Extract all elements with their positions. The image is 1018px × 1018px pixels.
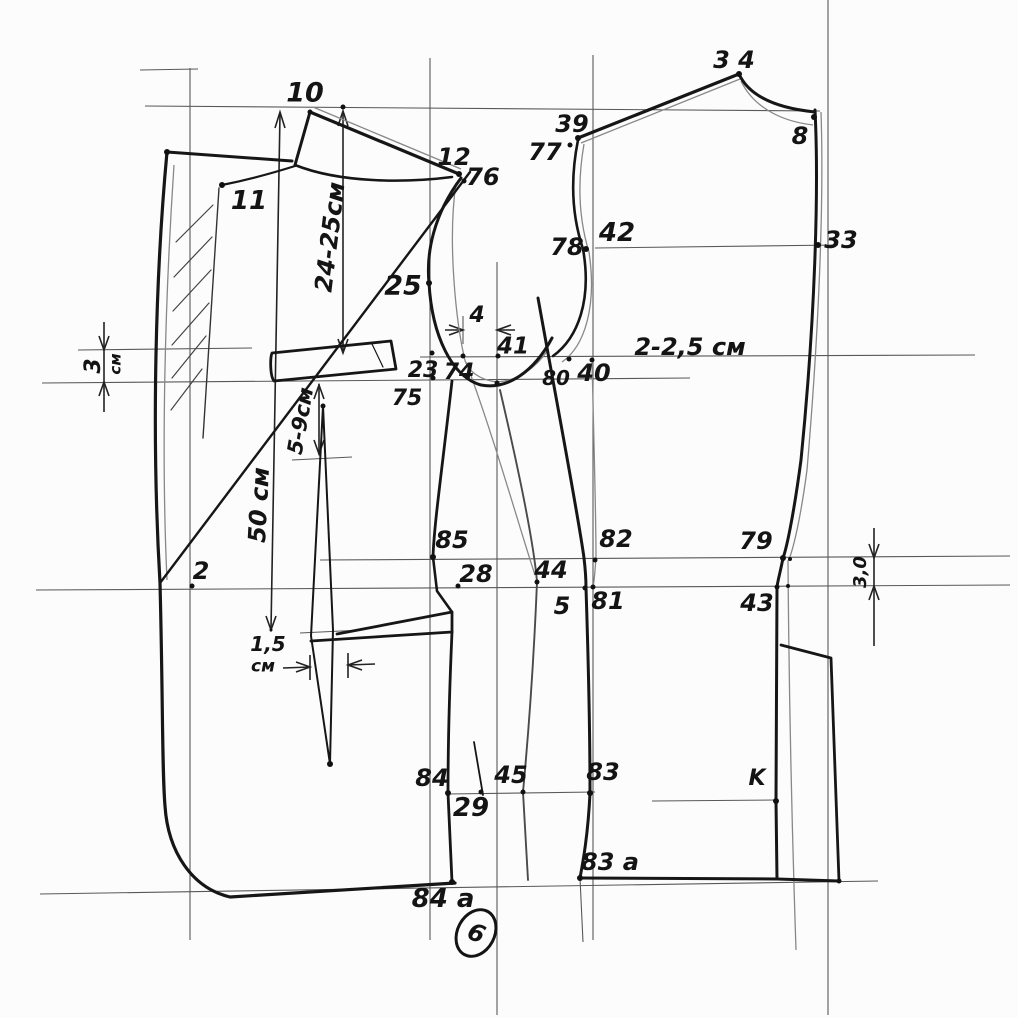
- pattern-point-dot: [321, 404, 326, 409]
- point-label-K: K: [748, 768, 765, 790]
- point-label-33: 33: [824, 228, 857, 252]
- front-waist-dart: [311, 406, 333, 764]
- lapel-notch-line: [295, 112, 310, 165]
- point-label-74: 74: [444, 362, 475, 384]
- back-center-edge: [776, 110, 816, 879]
- point-label-84a: 84 a: [412, 886, 475, 912]
- below-hem-tick: [580, 878, 583, 942]
- pattern-draft-sheet: 101112762523757441480402-2,5 см39773 484…: [0, 0, 1018, 1018]
- sheet-number: 6: [463, 917, 489, 949]
- pattern-point-dot: [327, 761, 333, 767]
- point-label-4: 4: [469, 305, 484, 327]
- dart-width-measure-line: [283, 653, 375, 680]
- front-armhole-curve: [428, 178, 552, 386]
- point-label-11: 11: [231, 188, 267, 214]
- point-label-44: 44: [534, 558, 567, 582]
- point-label-8: 8: [792, 124, 809, 148]
- pattern-point-dot: [430, 351, 435, 356]
- point-label-2: 2: [193, 559, 210, 583]
- side-piece-front-edge-lower: [448, 632, 452, 882]
- pattern-point-dot: [341, 105, 346, 110]
- back-shoulder-echo: [581, 79, 740, 143]
- point-label-10: 10: [286, 80, 324, 107]
- point-label-43: 43: [740, 591, 773, 615]
- side-piece-back-edge: [500, 390, 537, 880]
- point-label-79: 79: [739, 529, 772, 553]
- collar-point-curve: [222, 166, 295, 185]
- side-piece-step: [433, 557, 452, 612]
- pattern-point-dot: [788, 557, 792, 561]
- point-label-25: 25: [384, 273, 422, 300]
- chest-pocket-flap: [271, 341, 396, 381]
- pattern-point-dot: [815, 242, 821, 248]
- pattern-point-dot: [308, 110, 313, 115]
- measurement-right-gap: 3,0: [852, 556, 870, 588]
- point-label-dart-width-val: 1,5: [250, 634, 285, 654]
- pattern-point-dot: [521, 790, 526, 795]
- measurement-left-gap-unit: см: [109, 353, 124, 374]
- point-label-28: 28: [459, 562, 492, 586]
- flap-drop-tick: [292, 457, 352, 460]
- back-neck-curve: [739, 74, 815, 112]
- point-label-29: 29: [453, 795, 489, 821]
- point-label-83a: 83 a: [581, 850, 639, 874]
- point-label-41: 41: [497, 336, 529, 359]
- back-hem: [580, 878, 839, 881]
- point-label-39: 39: [555, 112, 588, 136]
- flap-inner-tick: [372, 344, 383, 367]
- point-label-76: 76: [466, 165, 499, 189]
- point-label-23: 23: [408, 360, 439, 382]
- pattern-point-dot: [495, 381, 500, 386]
- pattern-point-dot: [811, 114, 817, 120]
- measurement-front-length: 50 см: [245, 467, 273, 544]
- point-label-dart-width-unit: см: [251, 659, 275, 676]
- point-label-45: 45: [494, 763, 527, 787]
- front-neck-shoulder-line: [167, 152, 292, 161]
- front-edge-and-hem: [155, 152, 455, 897]
- waist-aux-line: [320, 556, 1010, 560]
- point-label-80: 80: [542, 368, 570, 388]
- front-edge-echo: [164, 165, 174, 580]
- point-label-5: 5: [554, 594, 571, 618]
- point-label-84: 84: [415, 766, 448, 790]
- point-label-77: 77: [528, 140, 561, 164]
- top-level-line: [145, 106, 820, 111]
- point-label-chest-note: 2-2,5 см: [634, 335, 745, 359]
- lapel-facing-line: [203, 188, 219, 438]
- pattern-point-dot: [837, 879, 842, 884]
- point-label-40: 40: [577, 361, 610, 385]
- pattern-point-dot: [426, 280, 432, 286]
- point-label-42: 42: [599, 220, 635, 246]
- measurement-left-gap-val: 3: [83, 358, 105, 373]
- top-left-tick: [140, 69, 198, 70]
- pattern-point-dot: [593, 558, 598, 563]
- pattern-point-dot: [456, 171, 462, 177]
- point-label-83: 83: [586, 760, 619, 784]
- pattern-point-dot: [587, 790, 593, 796]
- pattern-point-dot: [773, 798, 779, 804]
- pattern-point-dot: [583, 586, 588, 591]
- pattern-drawing: [0, 0, 1018, 1018]
- pattern-point-dot: [430, 554, 436, 560]
- pattern-point-dot: [219, 182, 225, 188]
- pattern-point-dot: [786, 584, 790, 588]
- point-label-85: 85: [435, 528, 468, 552]
- point-label-82: 82: [599, 527, 632, 551]
- pattern-point-dot: [775, 585, 780, 590]
- pattern-point-dot: [461, 354, 466, 359]
- pattern-point-dot: [567, 357, 572, 362]
- back-shoulder-line: [578, 74, 739, 138]
- gorge-curve: [295, 165, 452, 181]
- point-label-78: 78: [550, 235, 583, 259]
- point-label-75: 75: [392, 388, 423, 410]
- pattern-point-dot: [583, 246, 589, 252]
- point-label-81: 81: [591, 589, 624, 613]
- k-level-line: [652, 800, 778, 801]
- point-29-line: [474, 742, 483, 795]
- pattern-point-dot: [164, 149, 170, 155]
- pattern-point-dot: [568, 143, 573, 148]
- point-label-34: 3 4: [713, 48, 755, 72]
- pattern-point-dot: [780, 555, 786, 561]
